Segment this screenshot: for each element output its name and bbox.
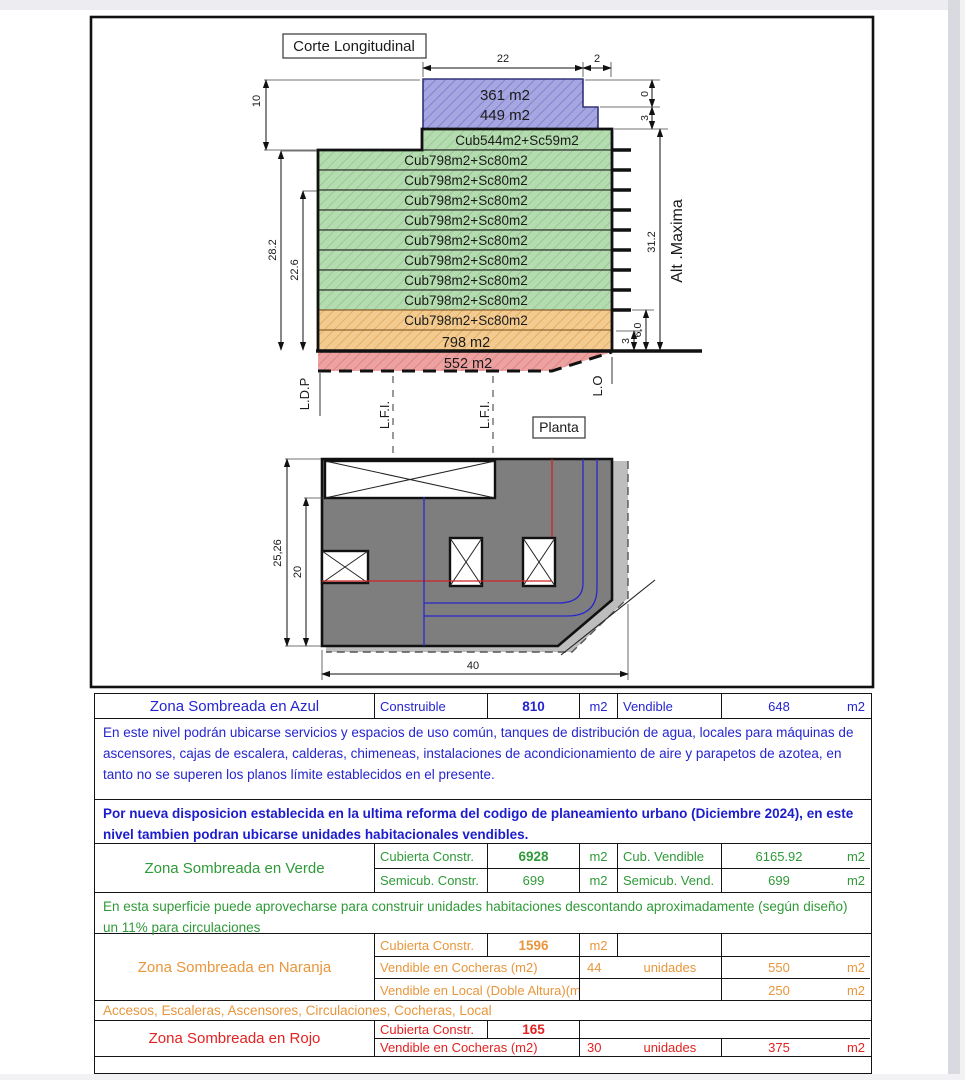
orange-row2-label: Vendible en Cocheras (m2) <box>375 957 580 979</box>
dim-upper-height: 10 <box>251 95 263 107</box>
green-row1-value2-cell: 6165.92 m2 <box>722 844 870 869</box>
blue-row-label2: Vendible <box>618 694 722 719</box>
green-row2-label2: Semicub. Vend. <box>618 869 722 892</box>
plan-title: Planta <box>539 419 579 435</box>
svg-text:Cub798m2+Sc80m2: Cub798m2+Sc80m2 <box>404 173 527 188</box>
blue-zone-note-bold: Por nueva disposicion establecida en la … <box>94 799 872 845</box>
dim-top-width: 22 <box>497 53 509 65</box>
green-row2-value2-cell: 699 m2 <box>722 869 870 892</box>
blue-zone-name: Zona Sombreada en Azul <box>95 694 375 719</box>
orange-row2-value: 550 <box>727 960 831 975</box>
alt-maxima-label: Alt .Maxima <box>669 199 686 283</box>
orange-row1-unit: m2 <box>580 934 618 957</box>
blue-area-2: 449 m2 <box>480 107 530 124</box>
green-zone-note: En esta superficie puede aprovecharse pa… <box>94 892 872 935</box>
document-page: Corte Longitudinal 361 m2 449 m2 Cub544m… <box>0 0 965 1080</box>
svg-text:Cub798m2+Sc80m2: Cub798m2+Sc80m2 <box>404 213 527 228</box>
orange-row2-unit: m2 <box>831 960 865 975</box>
blue-row-value2: 648 <box>727 699 831 714</box>
orange-zone-table: Zona Sombreada en Naranja Cubierta Const… <box>94 933 872 1002</box>
green-row2-value: 699 <box>488 869 580 892</box>
svg-text:Cub798m2+Sc80m2: Cub798m2+Sc80m2 <box>404 253 527 268</box>
red-row2-qty-cell: 30 unidades <box>580 1039 722 1057</box>
ground-floor-label: 798 m2 <box>442 335 490 351</box>
plan-drawing: Planta <box>272 417 655 680</box>
blue-row-unit2: m2 <box>831 699 865 714</box>
green-row1-value: 6928 <box>488 844 580 869</box>
blue-area-1: 361 m2 <box>480 87 530 104</box>
blue-row-value2-cell: 648 m2 <box>722 694 870 719</box>
dim-left-partial: 22.6 <box>289 259 301 280</box>
architectural-drawing: Corte Longitudinal 361 m2 449 m2 Cub544m… <box>0 0 965 692</box>
lfi-label-1: L.F.I. <box>377 401 392 429</box>
section-drawing: Corte Longitudinal 361 m2 449 m2 Cub544m… <box>251 34 702 497</box>
section-title: Corte Longitudinal <box>293 38 415 55</box>
photo-right-edge <box>960 0 965 1080</box>
zoning-tables: Zona Sombreada en Azul Construible 810 m… <box>94 693 872 1074</box>
slab-ticks <box>612 150 631 310</box>
orange-row2-qty: 44 <box>587 960 601 975</box>
orange-row2-value-cell: 550 m2 <box>722 957 870 979</box>
dim-left-total: 28.2 <box>267 239 279 260</box>
orange-row1-label: Cubierta Constr. <box>375 934 488 957</box>
green-row1-unit: m2 <box>580 844 618 869</box>
orange-row3-value-cell: 250 m2 <box>722 979 870 1001</box>
lfi-label-2: L.F.I. <box>477 401 492 429</box>
orange-row3-value: 250 <box>727 983 831 998</box>
dim-right-step: 3 <box>639 115 651 121</box>
red-row2-value: 375 <box>727 1040 831 1055</box>
dim-base-height: 6,0 <box>632 323 644 338</box>
green-row2-unit: m2 <box>580 869 618 892</box>
orange-row3-empty <box>580 979 722 1001</box>
orange-zone-note: Accesos, Escaleras, Ascensores, Circulac… <box>94 1000 872 1021</box>
photo-right-margin <box>948 0 960 1080</box>
red-row2-unit: m2 <box>831 1040 865 1055</box>
dim-plan-partial: 20 <box>292 566 304 578</box>
orange-floor-label: Cub798m2+Sc80m2 <box>404 313 527 328</box>
green-zone-table: Zona Sombreada en Verde Cubierta Constr.… <box>94 843 872 893</box>
red-row2-qty: 30 <box>587 1040 601 1055</box>
lo-label: L.O <box>590 376 605 397</box>
red-zone-name: Zona Sombreada en Rojo <box>95 1021 375 1057</box>
orange-row1-value: 1596 <box>488 934 580 957</box>
dim-total-height: 31.2 <box>646 231 658 252</box>
orange-row1-empty2 <box>722 934 870 957</box>
red-row2-qty-unit: unidades <box>643 1040 696 1055</box>
empty-footer-row <box>94 1056 872 1074</box>
orange-row1-empty1 <box>618 934 722 957</box>
roof-floor-label: Cub544m2+Sc59m2 <box>455 133 578 148</box>
dim-base-step: 3 <box>620 338 632 344</box>
red-row2-value-cell: 375 m2 <box>722 1039 870 1057</box>
orange-row2-qty-unit: unidades <box>643 960 696 975</box>
green-zone-name: Zona Sombreada en Verde <box>95 844 375 892</box>
svg-text:Cub798m2+Sc80m2: Cub798m2+Sc80m2 <box>404 293 527 308</box>
blue-zone-note: En este nivel podrán ubicarse servicios … <box>94 718 872 800</box>
orange-zone-name: Zona Sombreada en Naranja <box>95 934 375 1001</box>
orange-row3-label: Vendible en Local (Doble Altura)(m2 <box>375 979 580 1001</box>
dim-plan-width: 40 <box>467 660 479 672</box>
green-row1-unit2: m2 <box>831 849 865 864</box>
green-row2-value2: 699 <box>727 873 831 888</box>
red-zone-table: Zona Sombreada en Rojo Cubierta Constr. … <box>94 1020 872 1058</box>
orange-row3-unit: m2 <box>831 983 865 998</box>
green-row1-label: Cubierta Constr. <box>375 844 488 869</box>
red-row2-label: Vendible en Cocheras (m2) <box>375 1039 580 1057</box>
blue-row-unit: m2 <box>580 694 618 719</box>
blue-zone-table: Zona Sombreada en Azul Construible 810 m… <box>94 693 872 720</box>
green-row1-label2: Cub. Vendible <box>618 844 722 869</box>
red-row1-label: Cubierta Constr. <box>375 1021 488 1039</box>
photo-top-margin <box>0 0 965 10</box>
dim-plan-height: 25,26 <box>272 539 284 567</box>
svg-text:Cub798m2+Sc80m2: Cub798m2+Sc80m2 <box>404 153 527 168</box>
typical-floors: Cub798m2+Sc80m2 Cub798m2+Sc80m2 Cub798m2… <box>318 150 612 310</box>
dim-top-step: 2 <box>594 53 600 65</box>
green-row2-label: Semicub. Constr. <box>375 869 488 892</box>
svg-text:Cub798m2+Sc80m2: Cub798m2+Sc80m2 <box>404 193 527 208</box>
photo-bottom-margin <box>0 1074 965 1080</box>
svg-text:Cub798m2+Sc80m2: Cub798m2+Sc80m2 <box>404 233 527 248</box>
blue-row-label: Construible <box>375 694 488 719</box>
orange-row2-qty-cell: 44 unidades <box>580 957 722 979</box>
blue-row-value: 810 <box>488 694 580 719</box>
red-row1-empty <box>580 1021 870 1039</box>
svg-text:Cub798m2+Sc80m2: Cub798m2+Sc80m2 <box>404 273 527 288</box>
green-row2-unit2: m2 <box>831 873 865 888</box>
ldp-label: L.D.P <box>297 378 312 411</box>
red-row1-value: 165 <box>488 1021 580 1039</box>
green-row1-value2: 6165.92 <box>727 849 831 864</box>
dim-right-zero: 0 <box>639 91 651 97</box>
